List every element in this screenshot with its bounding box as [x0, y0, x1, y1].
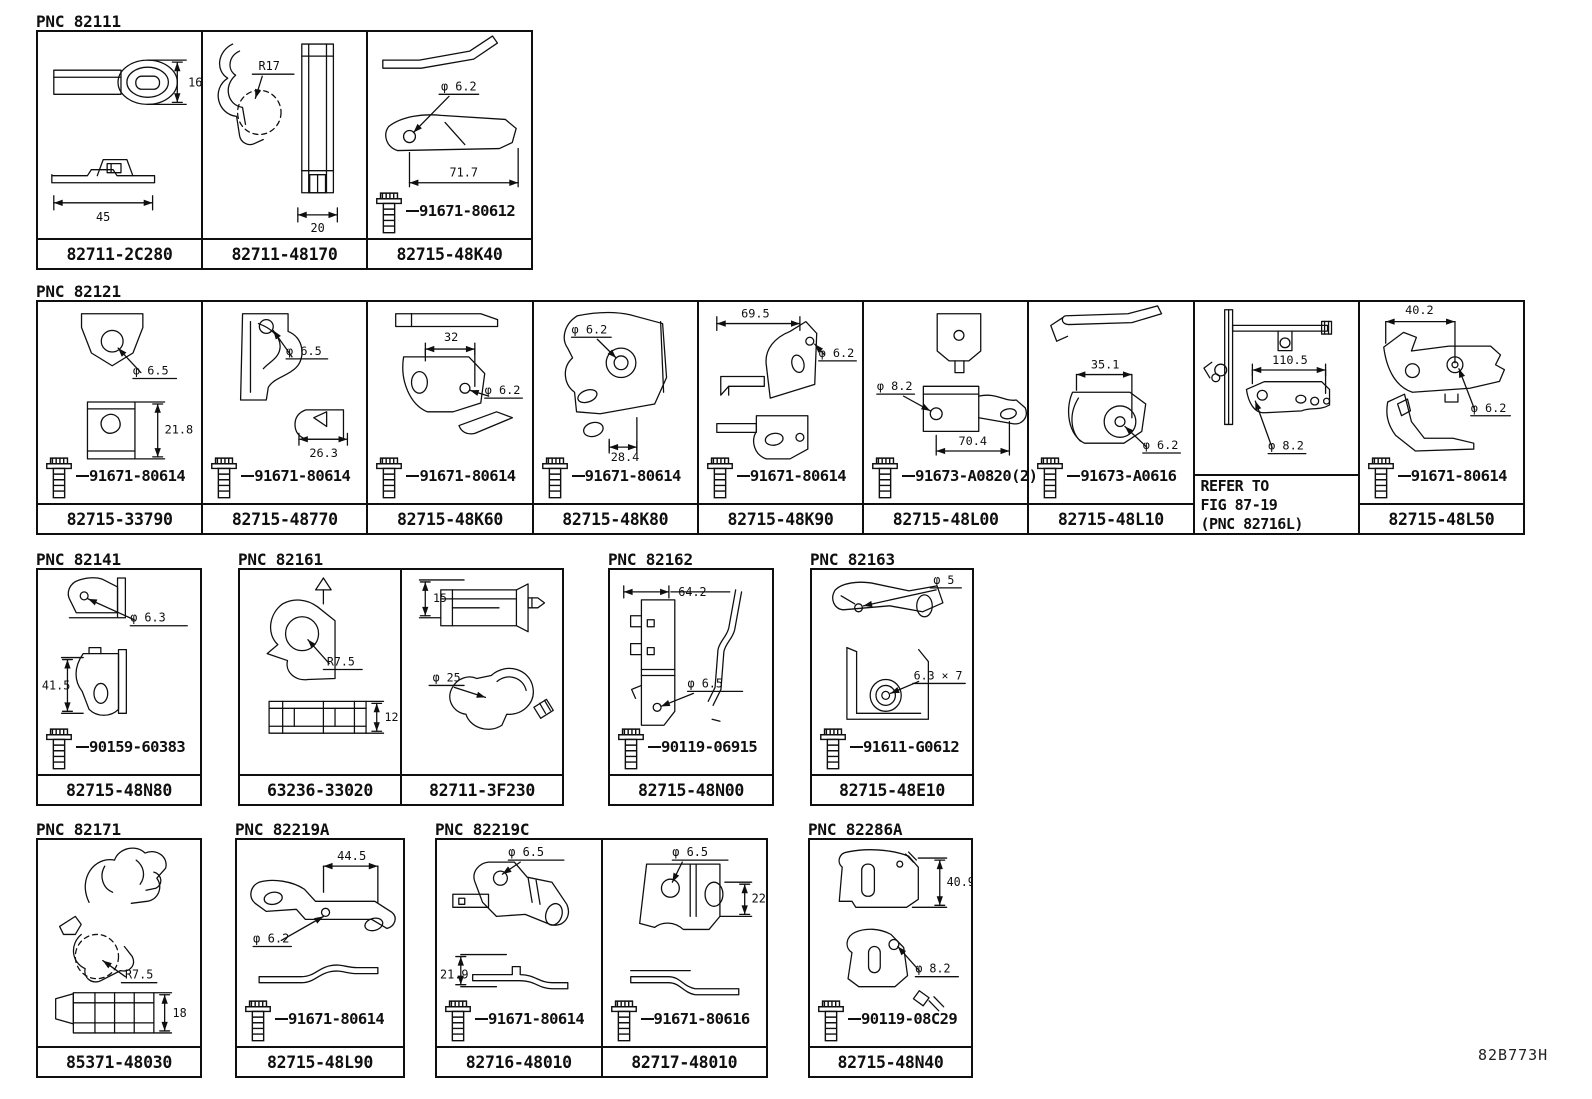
bolt-leader-line: [648, 746, 661, 748]
pnc-group: PNC 82141φ 6.341.590159-6038382715-48N80: [36, 550, 202, 806]
dim-label: 18: [173, 1006, 187, 1020]
bolt-icon: [373, 452, 405, 500]
bolt-leader-line: [406, 210, 419, 212]
part-number: 85371-48030: [66, 1053, 172, 1072]
refer-note: REFER TOFIG 87-19(PNC 82716L): [1195, 474, 1358, 533]
bolt-part-number: 91671-80614: [1411, 467, 1507, 485]
pnc-label: PNC 82286A: [808, 820, 973, 838]
part-number-band: 82715-48K40: [368, 238, 531, 268]
part-number-band: 82715-48L90: [237, 1046, 403, 1076]
bolt-icon: [208, 452, 240, 500]
part-number: 82715-33790: [67, 510, 173, 529]
bracket-drawing: φ 6.341.590159-60383: [38, 570, 200, 774]
part-cell: φ 8.270.491673-A0820(2)82715-48L00: [862, 302, 1027, 533]
bolt-part-number: 91671-80614: [488, 1010, 584, 1028]
bolt-row: 91671-80614: [704, 452, 846, 500]
part-cell: 40.9φ 8.290119-08C2982715-48N40: [810, 840, 971, 1076]
pnc-label: PNC 82171: [36, 820, 202, 838]
dim-label: 12: [384, 710, 398, 724]
bolt-leader-line: [241, 475, 254, 477]
dim-label: φ 6.2: [571, 322, 607, 336]
part-number: 82715-48N00: [638, 781, 744, 800]
bracket-drawing: φ 6.526.391671-80614: [203, 302, 366, 503]
bolt-icon: [43, 723, 75, 771]
part-cell: φ 6.521.991671-8061482716-48010: [437, 840, 601, 1076]
part-number-band: 82715-48N00: [610, 774, 772, 804]
part-cell: φ 56.3 × 791611-G061282715-48E10: [812, 570, 972, 804]
bolt-leader-line: [737, 475, 750, 477]
bolt-icon: [704, 452, 736, 500]
part-cell: 164582711-2C280: [38, 32, 201, 268]
part-number-band: 82715-48770: [203, 503, 366, 533]
bracket-drawing: 15φ 25: [402, 570, 562, 774]
bolt-icon: [1365, 452, 1397, 500]
bolt-icon: [43, 452, 75, 500]
part-number: 82717-48010: [631, 1053, 737, 1072]
part-cell: 40.2φ 6.291671-8061482715-48L50: [1358, 302, 1523, 533]
part-number-band: 82711-48170: [203, 238, 366, 268]
bolt-row: 90119-06915: [615, 723, 757, 771]
bolt-row: 91671-80614: [242, 995, 384, 1043]
dim-label: 6.3 × 7: [914, 668, 963, 682]
dim-label: 44.5: [337, 849, 366, 863]
part-table: φ 6.521.891671-8061482715-33790φ 6.526.3…: [36, 300, 1525, 535]
part-number: 82711-2C280: [67, 245, 173, 264]
part-table: φ 56.3 × 791611-G061282715-48E10: [810, 568, 974, 806]
part-number: 82715-48E10: [839, 781, 945, 800]
dim-label: φ 6.3: [130, 611, 165, 625]
part-number-band: 82715-48E10: [812, 774, 972, 804]
bolt-icon: [539, 452, 571, 500]
dim-label: φ 8.2: [1268, 439, 1304, 453]
bolt-leader-line: [1067, 475, 1080, 477]
part-cell: φ 6.52291671-8061682717-48010: [601, 840, 767, 1076]
part-number-band: 82711-2C280: [38, 238, 201, 268]
bracket-drawing: 40.9φ 8.290119-08C29: [810, 840, 971, 1046]
bolt-leader-line: [76, 746, 89, 748]
dim-label: φ 6.5: [672, 845, 708, 859]
bolt-icon: [817, 723, 849, 771]
dim-label: 21.9: [440, 968, 469, 982]
part-cell: R7.51263236-33020: [240, 570, 400, 804]
part-cell: 69.5φ 6.291671-8061482715-48K90: [697, 302, 862, 533]
dim-label: φ 6.5: [688, 676, 723, 690]
part-number: 82715-48K80: [562, 510, 668, 529]
part-number: 82715-48L00: [893, 510, 999, 529]
bracket-drawing: 1645: [38, 32, 201, 238]
bracket-sketch: 1645: [38, 32, 201, 238]
bracket-sketch: R7.518: [38, 840, 200, 1046]
pnc-label: PNC 82141: [36, 550, 202, 568]
dim-label: 16: [188, 75, 201, 89]
bolt-leader-line: [850, 746, 863, 748]
dim-label: φ 8.2: [877, 379, 913, 393]
bracket-drawing: 110.5φ 8.2: [1195, 302, 1358, 474]
bolt-row: 90119-08C29: [815, 995, 957, 1043]
bolt-part-number: 90159-60383: [89, 738, 185, 756]
bracket-drawing: 35.1φ 6.291673-A0616: [1029, 302, 1192, 503]
part-table: R7.51263236-3302015φ 2582711-3F230: [238, 568, 564, 806]
pnc-label: PNC 82161: [238, 550, 564, 568]
pnc-group: PNC 82163φ 56.3 × 791611-G061282715-48E1…: [810, 550, 974, 806]
pnc-label: PNC 82219A: [235, 820, 405, 838]
bolt-part-number: 91671-80614: [419, 467, 515, 485]
pnc-group: PNC 82161R7.51263236-3302015φ 2582711-3F…: [238, 550, 564, 806]
part-number: 82715-48N80: [66, 781, 172, 800]
bracket-drawing: φ 6.52291671-80616: [603, 840, 767, 1046]
bolt-part-number: 91671-80616: [654, 1010, 750, 1028]
bracket-drawing: φ 6.271.791671-80612: [368, 32, 531, 238]
part-cell: 35.1φ 6.291673-A061682715-48L10: [1027, 302, 1192, 533]
bolt-leader-line: [641, 1018, 654, 1020]
bracket-drawing: 40.2φ 6.291671-80614: [1360, 302, 1523, 503]
part-number: 63236-33020: [267, 781, 373, 800]
dim-label: 20: [310, 221, 324, 235]
bolt-row: 91611-G0612: [817, 723, 959, 771]
part-number-band: 82715-48K80: [534, 503, 697, 533]
bolt-icon: [373, 187, 405, 235]
part-cell: φ 6.521.891671-8061482715-33790: [38, 302, 201, 533]
doc-code: 82B773H: [1478, 1046, 1548, 1064]
bolt-row: 91671-80614: [442, 995, 584, 1043]
bolt-icon: [615, 723, 647, 771]
part-number-band: 82717-48010: [603, 1046, 767, 1076]
part-table: 164582711-2C280R172082711-48170φ 6.271.7…: [36, 30, 533, 270]
bolt-row: 91671-80614: [1365, 452, 1507, 500]
bolt-leader-line: [902, 475, 915, 477]
part-table: 64.2φ 6.590119-0691582715-48N00: [608, 568, 774, 806]
dim-label: 15: [433, 591, 447, 605]
dim-label: 22: [751, 891, 765, 905]
bolt-leader-line: [572, 475, 585, 477]
part-number-band: 82711-3F230: [402, 774, 562, 804]
pnc-group: PNC 82121φ 6.521.891671-8061482715-33790…: [36, 282, 1525, 535]
bolt-row: 91673-A0616: [1034, 452, 1176, 500]
bracket-drawing: φ 6.521.991671-80614: [437, 840, 601, 1046]
part-table: 44.5φ 6.291671-8061482715-48L90: [235, 838, 405, 1078]
dim-label: 32: [444, 330, 458, 344]
part-number-band: 82716-48010: [437, 1046, 601, 1076]
part-cell: φ 6.526.391671-8061482715-48770: [201, 302, 366, 533]
part-table: 40.9φ 8.290119-08C2982715-48N40: [808, 838, 973, 1078]
bolt-row: 91671-80614: [208, 452, 350, 500]
dim-label: 69.5: [741, 307, 770, 321]
bracket-drawing: R7.512: [240, 570, 400, 774]
bracket-sketch: R1720: [203, 32, 366, 238]
dim-label: 71.7: [450, 166, 479, 180]
note-line: FIG 87-19: [1201, 496, 1356, 515]
bolt-row: 91671-80612: [373, 187, 515, 235]
part-number-band: 85371-48030: [38, 1046, 200, 1076]
bracket-sketch: 15φ 25: [402, 570, 562, 774]
bracket-sketch: 110.5φ 8.2: [1195, 302, 1358, 474]
dim-label: 40.2: [1405, 303, 1434, 317]
bolt-leader-line: [475, 1018, 488, 1020]
bolt-icon: [608, 995, 640, 1043]
part-table: φ 6.341.590159-6038382715-48N80: [36, 568, 202, 806]
bolt-icon: [442, 995, 474, 1043]
dim-label: 110.5: [1272, 353, 1308, 367]
part-number-band: 82715-48N80: [38, 774, 200, 804]
dim-label: 21.8: [165, 422, 194, 436]
bolt-icon: [815, 995, 847, 1043]
bolt-leader-line: [1398, 475, 1411, 477]
dim-label: φ 25: [433, 670, 461, 684]
dim-label: R7.5: [125, 968, 153, 982]
bracket-drawing: φ 6.228.491671-80614: [534, 302, 697, 503]
part-cell: φ 6.341.590159-6038382715-48N80: [38, 570, 200, 804]
bolt-part-number: 91671-80612: [419, 202, 515, 220]
note-line: REFER TO: [1201, 477, 1356, 496]
part-number-band: 63236-33020: [240, 774, 400, 804]
pnc-label: PNC 82163: [810, 550, 974, 568]
part-number-band: 82715-33790: [38, 503, 201, 533]
part-number-band: 82715-48N40: [810, 1046, 971, 1076]
bracket-drawing: 64.2φ 6.590119-06915: [610, 570, 772, 774]
bolt-part-number: 91671-80614: [585, 467, 681, 485]
pnc-label: PNC 82162: [608, 550, 774, 568]
bracket-drawing: 32φ 6.291671-80614: [368, 302, 531, 503]
dim-label: φ 5: [933, 573, 954, 587]
dim-label: 45: [96, 210, 110, 224]
bracket-drawing: φ 8.270.491673-A0820(2): [864, 302, 1027, 503]
bolt-icon: [1034, 452, 1066, 500]
part-number: 82715-48K60: [397, 510, 503, 529]
part-number: 82715-48N40: [838, 1053, 944, 1072]
part-number-band: 82715-48L50: [1360, 503, 1523, 533]
bolt-row: 91671-80614: [373, 452, 515, 500]
pnc-label: PNC 82111: [36, 12, 533, 30]
pnc-group: PNC 82219A44.5φ 6.291671-8061482715-48L9…: [235, 820, 405, 1078]
dim-label: 70.4: [959, 434, 988, 448]
dim-label: φ 6.2: [441, 79, 477, 93]
part-cell: φ 6.228.491671-8061482715-48K80: [532, 302, 697, 533]
dim-label: R7.5: [327, 654, 355, 668]
part-number-band: 82715-48L10: [1029, 503, 1192, 533]
pnc-group: PNC 8216264.2φ 6.590119-0691582715-48N00: [608, 550, 774, 806]
dim-label: 40.9: [947, 875, 971, 889]
part-number: 82715-48L90: [267, 1053, 373, 1072]
bolt-part-number: 91611-G0612: [863, 738, 959, 756]
part-cell: 44.5φ 6.291671-8061482715-48L90: [237, 840, 403, 1076]
part-number: 82715-48L50: [1388, 510, 1494, 529]
pnc-group: PNC 82171R7.51885371-48030: [36, 820, 202, 1078]
bolt-leader-line: [848, 1018, 861, 1020]
dim-label: φ 8.2: [915, 961, 950, 975]
bolt-row: 91671-80614: [43, 452, 185, 500]
dim-label: φ 6.2: [1471, 401, 1507, 415]
pnc-label: PNC 82121: [36, 282, 1525, 300]
part-table: φ 6.521.991671-8061482716-48010φ 6.52291…: [435, 838, 768, 1078]
part-number: 82715-48L10: [1058, 510, 1164, 529]
bolt-part-number: 91673-A0616: [1080, 467, 1176, 485]
part-cell: R7.51885371-48030: [38, 840, 200, 1076]
dim-label: φ 6.2: [485, 383, 521, 397]
bolt-row: 91671-80614: [539, 452, 681, 500]
dim-label: 41.5: [42, 678, 70, 692]
part-table: R7.51885371-48030: [36, 838, 202, 1078]
bolt-icon: [242, 995, 274, 1043]
bolt-part-number: 91671-80614: [89, 467, 185, 485]
bracket-sketch: R7.512: [240, 570, 400, 774]
part-number-band: 82715-48L00: [864, 503, 1027, 533]
part-cell: 15φ 2582711-3F230: [400, 570, 562, 804]
bolt-part-number: 91671-80614: [750, 467, 846, 485]
pnc-group: PNC 82286A40.9φ 8.290119-08C2982715-48N4…: [808, 820, 973, 1078]
bolt-leader-line: [406, 475, 419, 477]
parts-catalog-page: PNC 82111164582711-2C280R172082711-48170…: [0, 0, 1592, 1099]
note-line: (PNC 82716L): [1201, 515, 1356, 534]
dim-label: φ 6.2: [819, 346, 855, 360]
dim-label: R17: [258, 59, 279, 73]
dim-label: 35.1: [1091, 358, 1120, 372]
bracket-drawing: R1720: [203, 32, 366, 238]
part-number-band: 82715-48K60: [368, 503, 531, 533]
part-cell: φ 6.271.791671-8061282715-48K40: [366, 32, 531, 268]
pnc-group: PNC 82111164582711-2C280R172082711-48170…: [36, 12, 533, 270]
bracket-drawing: 69.5φ 6.291671-80614: [699, 302, 862, 503]
part-cell: R172082711-48170: [201, 32, 366, 268]
pnc-label: PNC 82219C: [435, 820, 768, 838]
part-number: 82711-48170: [232, 245, 338, 264]
bolt-part-number: 91671-80614: [288, 1010, 384, 1028]
part-number-band: 82715-48K90: [699, 503, 862, 533]
bolt-row: 91673-A0820(2): [869, 452, 1037, 500]
part-cell: 110.5φ 8.2REFER TOFIG 87-19(PNC 82716L): [1193, 302, 1358, 533]
bolt-part-number: 91673-A0820(2): [915, 467, 1037, 485]
bracket-drawing: φ 6.521.891671-80614: [38, 302, 201, 503]
bolt-leader-line: [76, 475, 89, 477]
bolt-part-number: 90119-08C29: [861, 1010, 957, 1028]
part-number: 82711-3F230: [429, 781, 535, 800]
bolt-part-number: 90119-06915: [661, 738, 757, 756]
bracket-drawing: R7.518: [38, 840, 200, 1046]
dim-label: φ 6.2: [1143, 438, 1179, 452]
part-number: 82715-48K40: [397, 245, 503, 264]
dim-label: φ 6.5: [508, 845, 544, 859]
bolt-part-number: 91671-80614: [254, 467, 350, 485]
bracket-drawing: 44.5φ 6.291671-80614: [237, 840, 403, 1046]
part-number: 82716-48010: [466, 1053, 572, 1072]
part-cell: 32φ 6.291671-8061482715-48K60: [366, 302, 531, 533]
part-number: 82715-48770: [232, 510, 338, 529]
bracket-drawing: φ 56.3 × 791611-G0612: [812, 570, 972, 774]
part-cell: 64.2φ 6.590119-0691582715-48N00: [610, 570, 772, 804]
bolt-row: 90159-60383: [43, 723, 185, 771]
bolt-row: 91671-80616: [608, 995, 750, 1043]
bolt-leader-line: [275, 1018, 288, 1020]
part-number: 82715-48K90: [727, 510, 833, 529]
bolt-icon: [869, 452, 901, 500]
pnc-group: PNC 82219Cφ 6.521.991671-8061482716-4801…: [435, 820, 768, 1078]
